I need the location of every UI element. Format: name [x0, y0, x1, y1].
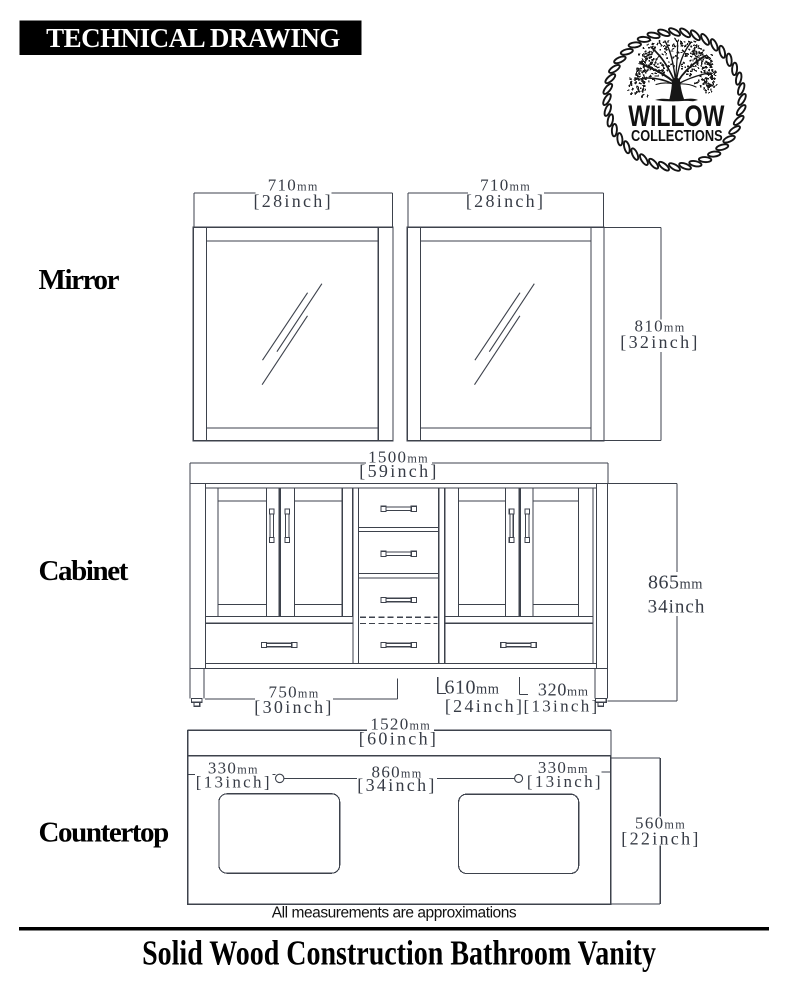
svg-text:[34inch]: [34inch] — [357, 775, 436, 795]
svg-text:610mm: 610mm — [445, 676, 500, 698]
svg-text:COLLECTIONS: COLLECTIONS — [631, 128, 723, 146]
svg-text:[13inch]: [13inch] — [527, 772, 603, 791]
svg-text:[59inch]: [59inch] — [359, 461, 438, 481]
svg-text:TECHNICAL DRAWING: TECHNICAL DRAWING — [46, 23, 340, 53]
svg-text:[30inch]: [30inch] — [254, 697, 333, 717]
svg-text:[32inch]: [32inch] — [620, 332, 699, 352]
svg-text:[60inch]: [60inch] — [359, 729, 438, 749]
svg-text:Mirror: Mirror — [39, 264, 120, 296]
svg-text:All measurements are approxima: All measurements are approximations — [272, 905, 517, 922]
svg-text:[22inch]: [22inch] — [621, 828, 700, 848]
svg-text:[28inch]: [28inch] — [254, 191, 333, 211]
svg-text:34inch: 34inch — [648, 597, 706, 618]
svg-text:Cabinet: Cabinet — [39, 555, 129, 587]
svg-text:Countertop: Countertop — [39, 817, 169, 849]
svg-text:[28inch]: [28inch] — [466, 191, 545, 211]
svg-text:[13inch]: [13inch] — [196, 773, 272, 792]
svg-text:Solid Wood Construction Bathro: Solid Wood Construction Bathroom Vanity — [142, 934, 656, 973]
svg-text:[13inch]: [13inch] — [524, 697, 600, 716]
svg-text:[24inch]: [24inch] — [445, 696, 524, 716]
